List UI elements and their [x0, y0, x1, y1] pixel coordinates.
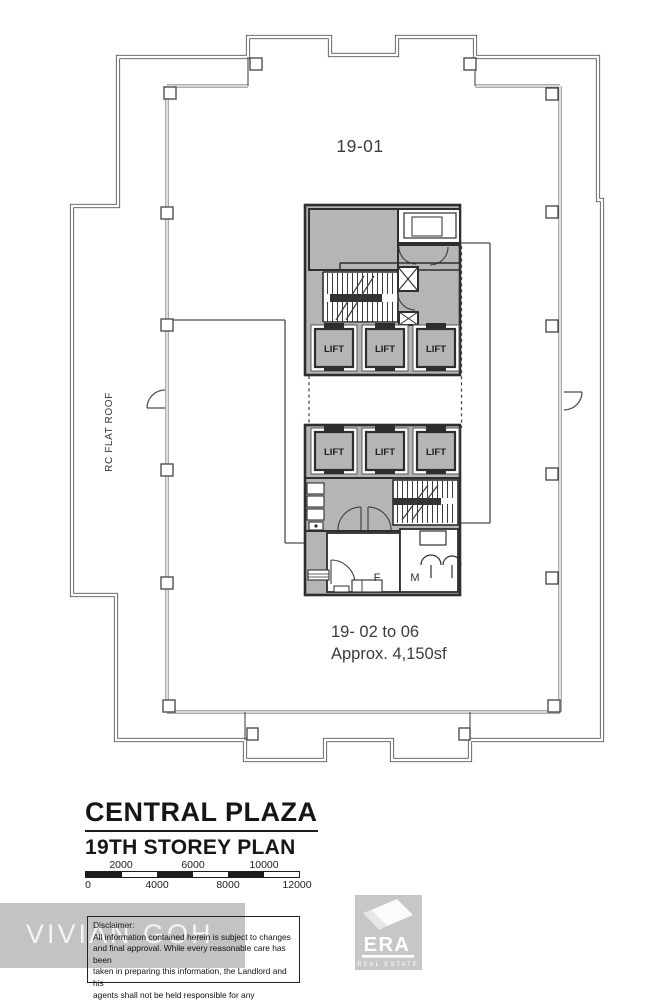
scale-bar: 2000 6000 10000 0 4000 8000 12000 [85, 859, 300, 889]
lift-label: LIFT [426, 447, 446, 458]
floor-plan-drawing: 19-01 19- 02 to 06 Approx. 4,150sf RC FL… [0, 0, 672, 790]
scale-segment [193, 872, 229, 877]
scale-segment [157, 872, 193, 877]
scale-tick-label: 0 [85, 879, 91, 891]
disclaimer-line: taken in preparing this information, the… [93, 966, 294, 989]
plan-name: 19TH STOREY PLAN [85, 836, 318, 860]
scale-tick-label: 10000 [249, 859, 278, 871]
scale-segment [228, 872, 264, 877]
unit-label-area: Approx. 4,150sf [331, 645, 447, 663]
lift-label: LIFT [375, 344, 395, 355]
title-block: CENTRAL PLAZA 19TH STOREY PLAN [85, 797, 318, 860]
roof-label: RC FLAT ROOF [104, 392, 115, 472]
lift-label: LIFT [426, 344, 446, 355]
lift-label: LIFT [324, 344, 344, 355]
scale-tick-label: 12000 [282, 879, 311, 891]
floor-plan-page: 19-01 19- 02 to 06 Approx. 4,150sf RC FL… [0, 0, 672, 1000]
male-toilet-label: M [410, 572, 419, 584]
door-swings [147, 390, 582, 410]
scale-tick-label: 8000 [216, 879, 239, 891]
logo-underline [362, 955, 414, 958]
scale-bar-segments [85, 871, 300, 878]
unit-label-19-01: 19-01 [336, 136, 383, 156]
disclaimer-box: Disclaimer: All information contained he… [87, 916, 300, 983]
disclaimer-line: All information contained herein is subj… [93, 932, 294, 944]
era-logo: ERA REAL ESTATE [355, 895, 422, 970]
scale-tick-label: 2000 [109, 859, 132, 871]
disclaimer-line: and final approval. While every reasonab… [93, 943, 294, 966]
era-logo-graphic: ERA REAL ESTATE [355, 895, 422, 970]
female-toilet-label: F [374, 572, 381, 584]
logo-brand: ERA [364, 934, 411, 956]
scale-segment [122, 872, 158, 877]
disclaimer-heading: Disclaimer: [93, 920, 294, 932]
scale-segment [264, 872, 300, 877]
logo-tagline: REAL ESTATE [357, 962, 419, 968]
scale-tick-label: 6000 [181, 859, 204, 871]
scale-segment [86, 872, 122, 877]
unit-label-range: 19- 02 to 06 [331, 623, 419, 641]
lift-label: LIFT [324, 447, 344, 458]
disclaimer-line: agents shall not be held responsible for… [93, 990, 294, 1000]
scale-tick-label: 4000 [145, 879, 168, 891]
lift-label: LIFT [375, 447, 395, 458]
building-name: CENTRAL PLAZA [85, 797, 318, 832]
